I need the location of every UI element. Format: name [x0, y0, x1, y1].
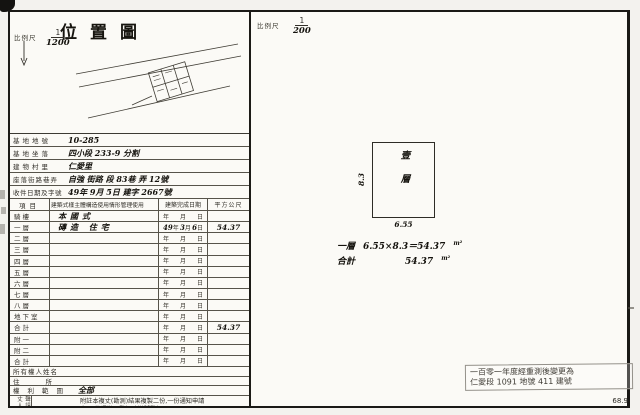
floor-row: 地下室 年 月 日 — [10, 311, 249, 322]
floor-label: 附二 — [10, 345, 50, 355]
floor-row: 合計 年 月 日 — [10, 356, 249, 367]
floor-area: 54.37 — [208, 223, 249, 232]
room-label: 壹層 — [397, 150, 411, 197]
scale-fraction: 1 200 — [293, 16, 311, 36]
completion-date-cell: 年 月 日 — [158, 356, 208, 366]
scan-artifact — [0, 190, 5, 199]
header-area-sqm: 平方公尺 — [208, 200, 249, 209]
floor-label: 五層 — [10, 267, 50, 277]
row-value: 四小段 233-9 分割 — [68, 148, 249, 159]
table-row-owner-name: 所有權人姓名 — [10, 367, 249, 377]
floor-label: 一層 — [10, 222, 50, 232]
floor-row: 六層 年 月 日 — [10, 278, 249, 289]
remarks-note: 附註本複丈(勘測)結果複製二份,一份通知申請 人,一份憑變更登記時掛號登記 — [32, 396, 249, 407]
floor-structure-use: 本國式 — [50, 211, 158, 222]
registry-table: 基地地號 10-285 基地坐落 四小段 233-9 分割 建物村里 仁愛里 座… — [10, 133, 249, 406]
floor-row: 騎樓 本國式 年 月 日 — [10, 211, 249, 222]
dimension-bottom: 6.55 — [394, 220, 412, 229]
scale-denominator: 1200 — [46, 38, 70, 48]
calc-label: 合計 — [337, 255, 355, 270]
floor-label: 七層 — [10, 289, 50, 299]
floor-label: 附一 — [10, 334, 50, 344]
scale-label: 比例尺 — [257, 20, 280, 30]
table-row-owner-address: 住所 — [10, 377, 249, 387]
scan-artifact — [628, 307, 634, 309]
floor-row: 三層 年 月 日 — [10, 244, 249, 255]
location-map-panel: 位置圖 比例尺 1 1200 — [10, 12, 249, 406]
floor-plan-outline: 壹層 8.3 6.55 — [372, 142, 435, 218]
row-value: 仁愛里 — [68, 161, 249, 172]
floor-structure-use: 磚造 住宅 — [50, 222, 158, 233]
table-header-row: 項目 建築式樣主體構造使用情形管理使用 建築完成日期 平方公尺 — [10, 199, 249, 211]
table-row-receipt-date: 收件日期及字號 49年 9月 5日 建字 2667號 — [10, 186, 249, 199]
table-row-land-location: 基地坐落 四小段 233-9 分割 — [10, 147, 249, 160]
table-row-village: 建物村里 仁愛里 — [10, 160, 249, 173]
calc-expression: 54.37 — [363, 255, 433, 270]
floor-rows: 騎樓 本國式 年 月 日 一層 磚造 住宅 49年 3月 6日 54.37 二層… — [10, 211, 249, 367]
row-value: 10-285 — [68, 135, 249, 145]
calc-line-total: 合計 54.37 m² — [337, 255, 462, 270]
floor-row: 附一 年 月 日 — [10, 334, 249, 345]
calc-unit: m² — [453, 236, 462, 251]
scale-fraction: 1 1200 — [46, 28, 70, 48]
floor-label: 合計 — [10, 322, 50, 332]
floor-area: 54.37 — [208, 323, 249, 332]
table-row-rights-scope: 權利範圍 全部 — [10, 386, 249, 396]
floor-label: 四層 — [10, 256, 50, 266]
floor-label: 二層 — [10, 233, 50, 243]
completion-date-cell: 年 月 日 — [158, 267, 208, 277]
floor-label: 地下室 — [10, 311, 50, 321]
floor-label: 合計 — [10, 356, 50, 366]
floor-plan-panel: 比例尺 1 200 壹層 8.3 6.55 一層 6.55×8.3＝54.37 … — [249, 12, 632, 406]
floor-row: 二層 年 月 日 — [10, 233, 249, 244]
scan-artifact — [1, 207, 6, 214]
completion-date-cell: 年 月 日 — [158, 300, 208, 310]
row-label: 建物村里 — [10, 161, 68, 171]
header-item: 項目 — [10, 199, 50, 210]
calc-label: 一層 — [337, 240, 355, 255]
calc-unit: m² — [441, 251, 450, 266]
floor-row: 合計 年 月 日 54.37 — [10, 322, 249, 333]
site-sketch — [68, 30, 246, 130]
floor-row: 七層 年 月 日 — [10, 289, 249, 300]
calc-expression: 6.55×8.3＝54.37 — [363, 240, 445, 255]
remarks-line-1: 附註本複丈(勘測)結果複製二份,一份通知申請 — [80, 398, 247, 407]
header-completion-date: 建築完成日期 — [158, 199, 208, 210]
completion-date-cell: 49年 3月 6日 — [158, 222, 208, 232]
floor-label: 八層 — [10, 300, 50, 310]
completion-date-cell: 年 月 日 — [158, 233, 208, 243]
row-label: 基地坐落 — [10, 148, 68, 158]
scale-denominator: 200 — [293, 26, 311, 36]
scale-numerator: 1 — [295, 16, 308, 26]
row-value: 全部 — [72, 386, 249, 396]
table-row-street-address: 座落街路巷弄 自強 街路 段 83巷 弄 12號 — [10, 173, 249, 186]
scale-numerator: 1 — [51, 28, 64, 38]
floor-label: 六層 — [10, 278, 50, 288]
completion-date-cell: 年 月 日 — [158, 322, 208, 332]
completion-date-cell: 年 月 日 — [158, 256, 208, 266]
header-structure-use: 建築式樣主體構造使用情形管理使用 — [50, 200, 158, 209]
completion-date-cell: 年 月 日 — [158, 244, 208, 254]
leader-arrow-icon — [19, 40, 29, 66]
row-label: 權利範圍 — [10, 386, 72, 395]
row-label: 住所 — [10, 377, 72, 386]
floor-row: 附二 年 月 日 — [10, 345, 249, 356]
applicant-seal-label: 聲請複丈人章 — [10, 396, 32, 407]
row-label: 基地地號 — [10, 135, 68, 145]
floor-label: 三層 — [10, 244, 50, 254]
page-code: 68.9 — [612, 397, 628, 405]
floor-row: 五層 年 月 日 — [10, 267, 249, 278]
floor-row: 四層 年 月 日 — [10, 256, 249, 267]
table-row-land-number: 基地地號 10-285 — [10, 134, 249, 147]
row-label: 收件日期及字號 — [10, 187, 68, 197]
floor-row: 八層 年 月 日 — [10, 300, 249, 311]
completion-date-cell: 年 月 日 — [158, 278, 208, 288]
completion-date-cell: 年 月 日 — [158, 289, 208, 299]
scan-artifact — [0, 224, 5, 234]
table-row-remarks: 聲請複丈人章 附註本複丈(勘測)結果複製二份,一份通知申請 人,一份憑變更登記時… — [10, 396, 249, 407]
stamp-line-2: 仁愛段 1091 地號 411 建號 — [470, 376, 628, 388]
completion-date-cell: 年 月 日 — [158, 345, 208, 355]
row-value: 自強 街路 段 83巷 弄 12號 — [68, 174, 249, 185]
row-label: 所有權人姓名 — [10, 367, 72, 376]
completion-date-cell: 年 月 日 — [158, 211, 208, 221]
area-calculation: 一層 6.55×8.3＝54.37 m² 合計 54.37 m² — [337, 240, 462, 270]
scanned-form-page: 位置圖 比例尺 1 1200 — [8, 10, 630, 408]
completion-date-cell: 年 月 日 — [158, 311, 208, 321]
row-value: 49年 9月 5日 建字 2667號 — [68, 187, 249, 198]
floor-row: 一層 磚造 住宅 49年 3月 6日 54.37 — [10, 222, 249, 233]
row-label: 座落街路巷弄 — [10, 174, 68, 184]
floor-label: 騎樓 — [10, 211, 50, 221]
completion-date-cell: 年 月 日 — [158, 334, 208, 344]
dimension-left: 8.3 — [357, 173, 366, 186]
resurvey-stamp: 一百零一年度經重測後變更為 仁愛段 1091 地號 411 建號 — [465, 363, 633, 391]
